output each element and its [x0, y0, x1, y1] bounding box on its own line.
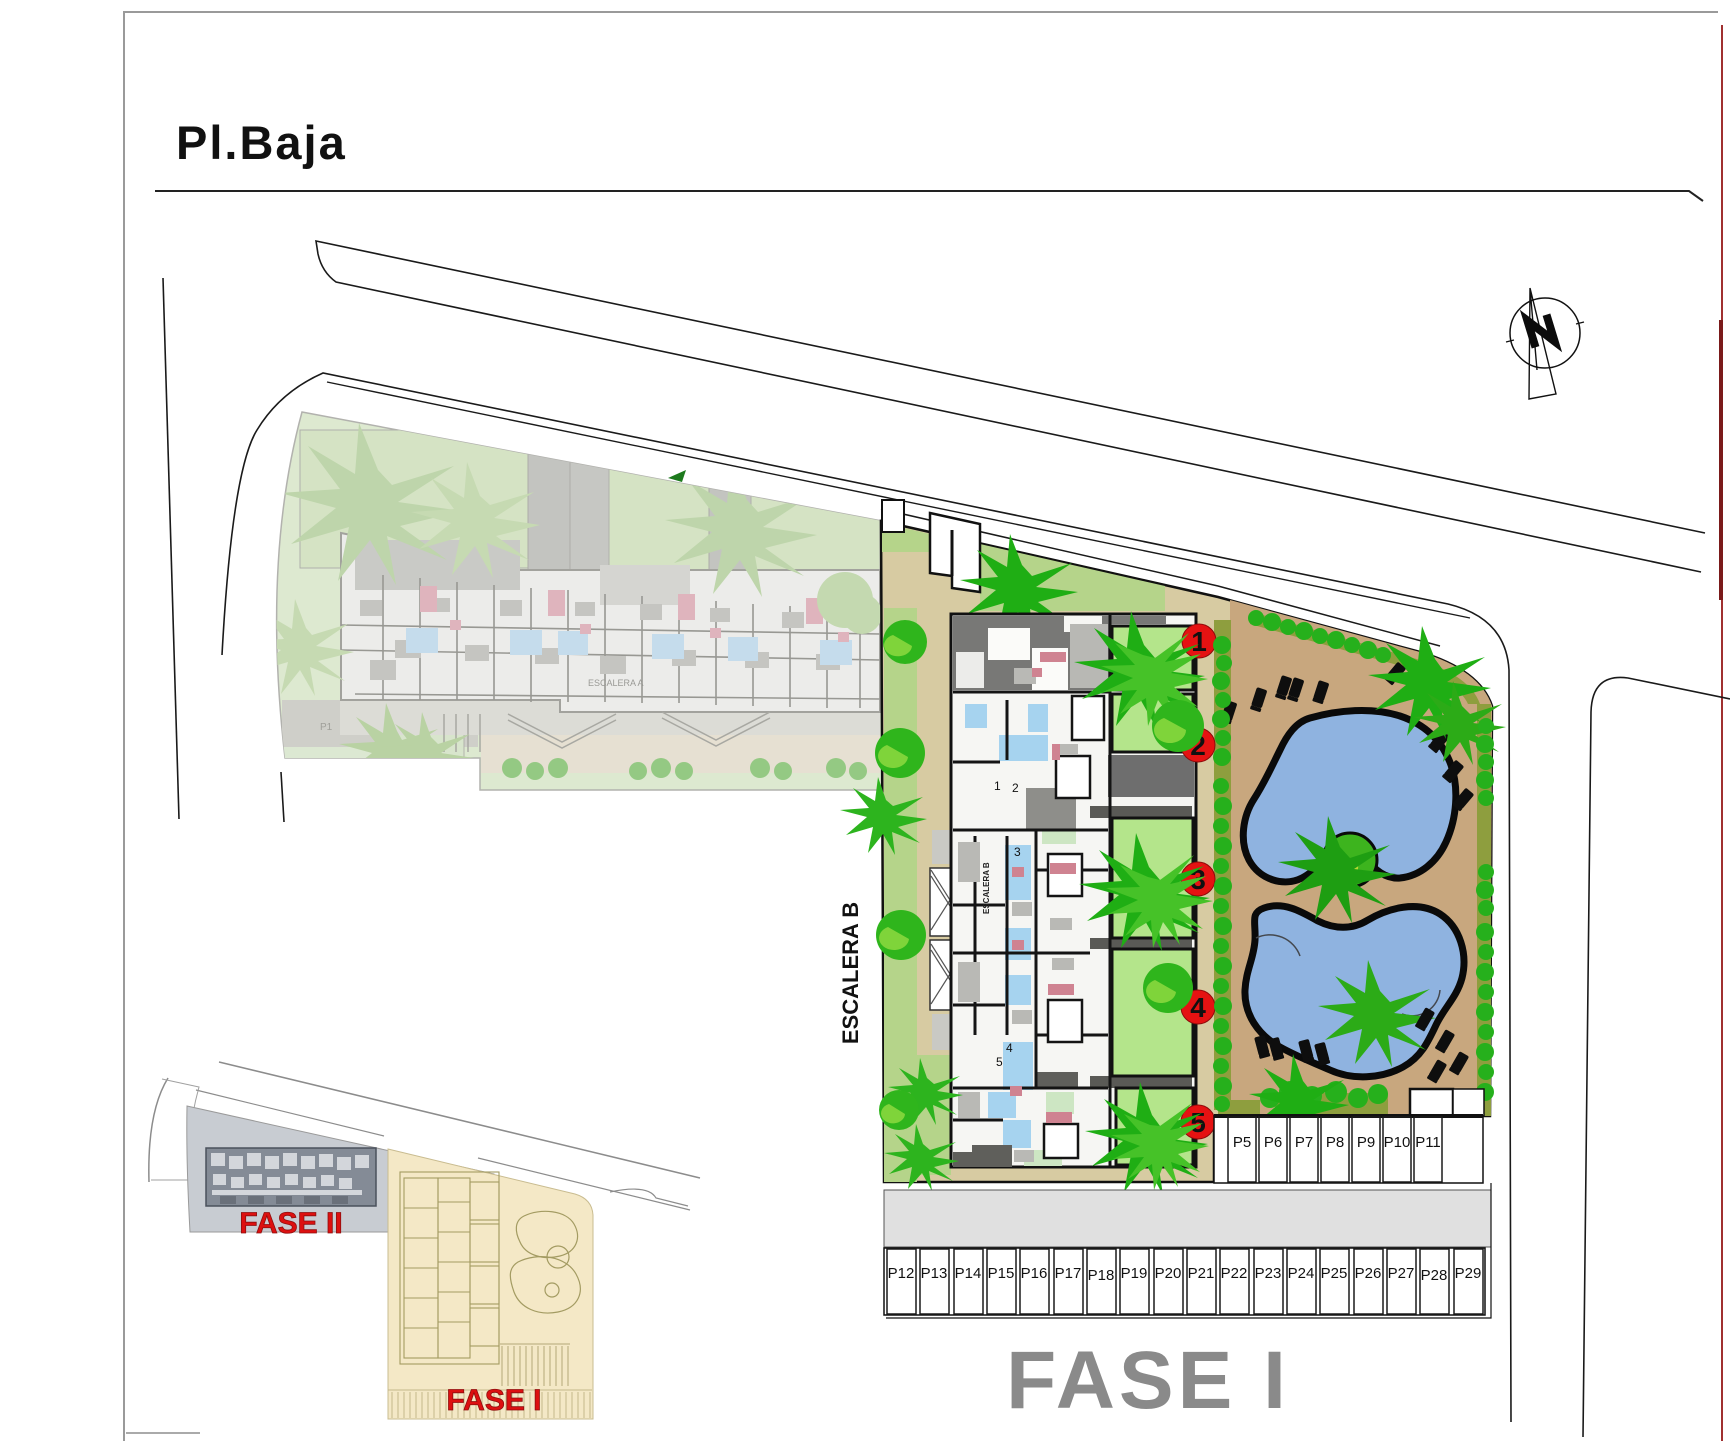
svg-text:P10: P10 [1384, 1134, 1411, 1151]
svg-text:1: 1 [994, 779, 1001, 793]
svg-text:3: 3 [1014, 845, 1021, 859]
svg-text:1: 1 [1191, 626, 1207, 657]
svg-text:P20: P20 [1155, 1265, 1182, 1282]
svg-text:P23: P23 [1255, 1265, 1282, 1282]
svg-text:P19: P19 [1121, 1265, 1148, 1282]
svg-text:2: 2 [1012, 781, 1019, 795]
svg-text:P29: P29 [1455, 1265, 1482, 1282]
svg-text:P7: P7 [1295, 1134, 1313, 1151]
svg-text:ESCALERA B: ESCALERA B [982, 862, 991, 914]
svg-text:P6: P6 [1264, 1134, 1282, 1151]
svg-text:FASE II: FASE II [239, 1207, 342, 1240]
svg-text:P28: P28 [1421, 1267, 1448, 1284]
svg-text:P16: P16 [1021, 1265, 1048, 1282]
svg-text:P18: P18 [1088, 1267, 1115, 1284]
svg-text:P22: P22 [1221, 1265, 1248, 1282]
svg-text:P9: P9 [1357, 1134, 1375, 1151]
svg-text:ESCALERA B: ESCALERA B [838, 902, 863, 1044]
svg-text:P26: P26 [1355, 1265, 1382, 1282]
svg-text:P11: P11 [1415, 1134, 1441, 1151]
svg-text:5: 5 [996, 1055, 1003, 1069]
svg-text:P14: P14 [955, 1265, 982, 1282]
svg-text:5: 5 [1190, 1107, 1206, 1138]
svg-text:P12: P12 [888, 1265, 915, 1282]
svg-text:P24: P24 [1288, 1265, 1315, 1282]
svg-text:P8: P8 [1326, 1134, 1344, 1151]
svg-text:Pl.Baja: Pl.Baja [176, 116, 347, 169]
svg-text:P1: P1 [320, 722, 333, 733]
svg-text:FASE I: FASE I [1006, 1335, 1290, 1426]
svg-text:P13: P13 [921, 1265, 948, 1282]
svg-text:ESCALERA A: ESCALERA A [588, 678, 644, 688]
svg-text:FASE I: FASE I [446, 1384, 541, 1417]
svg-text:4: 4 [1190, 992, 1206, 1023]
svg-text:P21: P21 [1188, 1265, 1215, 1282]
svg-text:P25: P25 [1321, 1265, 1348, 1282]
svg-text:4: 4 [1006, 1041, 1013, 1055]
svg-text:P15: P15 [988, 1265, 1015, 1282]
svg-text:P17: P17 [1055, 1265, 1082, 1282]
svg-text:P5: P5 [1233, 1134, 1251, 1151]
svg-text:P27: P27 [1388, 1265, 1415, 1282]
